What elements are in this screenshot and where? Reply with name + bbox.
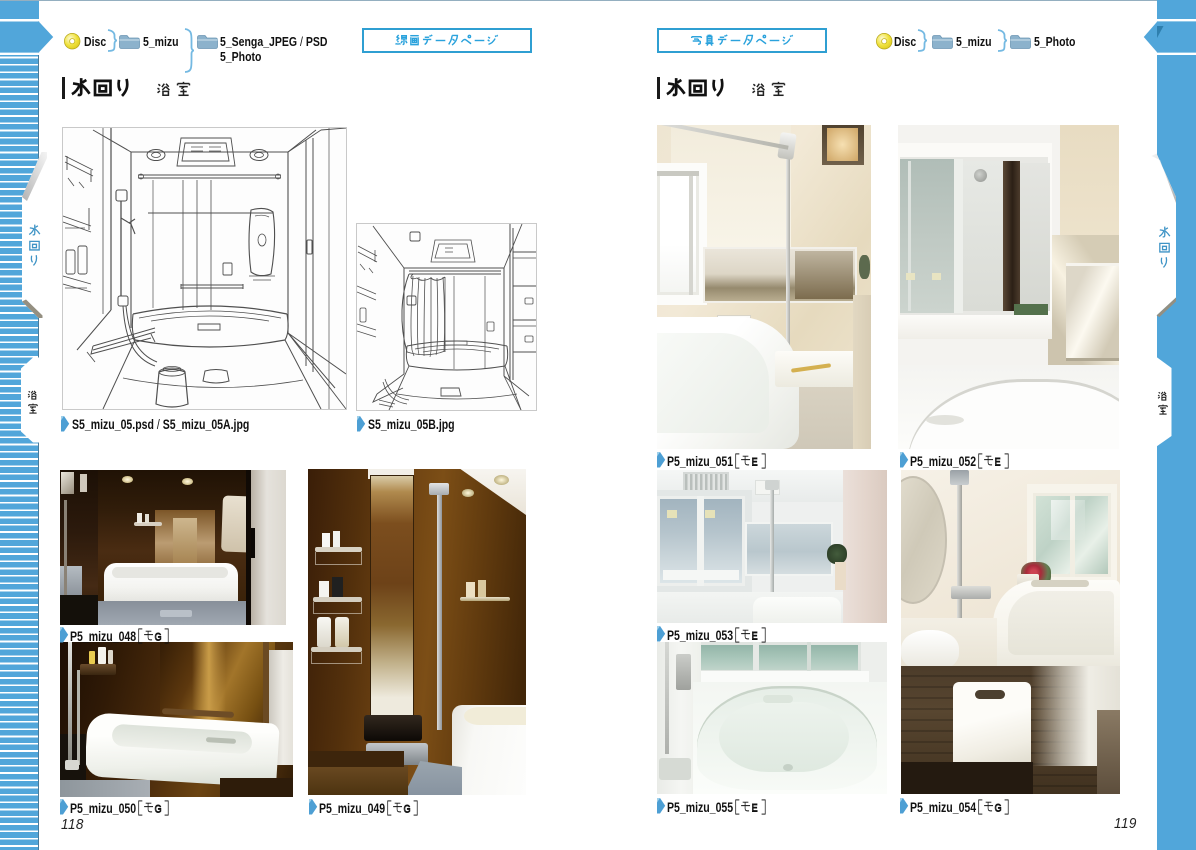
svg-text:G: G	[154, 632, 161, 644]
svg-text:E: E	[751, 631, 757, 643]
svg-text:G: G	[994, 803, 1001, 815]
svg-text:G: G	[403, 804, 410, 816]
svg-text:E: E	[751, 457, 757, 469]
svg-text:E: E	[751, 803, 757, 815]
svg-text:E: E	[994, 457, 1000, 469]
svg-text:G: G	[154, 804, 161, 816]
